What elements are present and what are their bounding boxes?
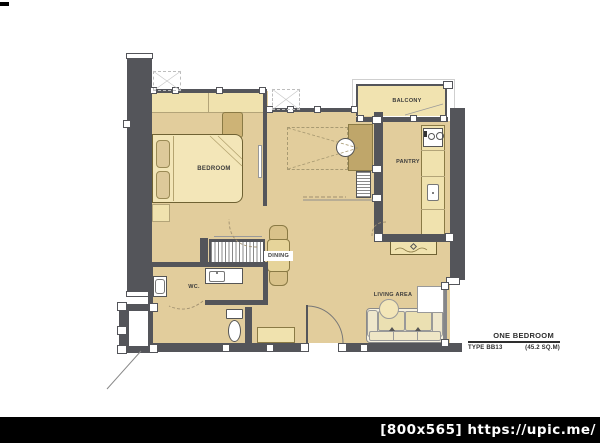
wall-joint — [149, 344, 158, 353]
room-label-living: LIVING AREA — [369, 291, 417, 300]
wall-joint — [117, 345, 127, 354]
scan-artifact — [0, 2, 9, 6]
wall-wc-top — [150, 262, 268, 267]
wall-toilet-nook — [245, 307, 252, 352]
pillow — [156, 171, 170, 199]
window-mullion — [410, 115, 417, 122]
room-label-bedroom: BEDROOM — [193, 165, 235, 174]
vestibule-floor — [129, 311, 149, 346]
room-label-pantry: PANTRY — [392, 158, 424, 167]
wall-joint — [374, 233, 383, 242]
watermark-text: [800x565] https://upic.me/ — [380, 422, 596, 438]
counter-divider — [421, 209, 445, 210]
window-mullion — [351, 106, 358, 113]
pillow — [156, 140, 170, 168]
cooktop-knob — [424, 131, 427, 137]
room-label-dining: DINING — [264, 251, 293, 261]
wall-closet-stub — [200, 238, 208, 266]
wall-joint — [300, 343, 309, 352]
balcony-door-band — [356, 117, 448, 122]
counter-divider — [421, 176, 445, 177]
side-table — [417, 286, 444, 313]
window-mullion — [440, 115, 447, 122]
sofa-mark — [389, 327, 395, 331]
burner — [428, 133, 435, 140]
plan-title: ONE BEDROOM — [468, 331, 560, 340]
wall-joint — [126, 53, 153, 59]
wc-sink-faucet — [216, 272, 218, 274]
dining-chair — [269, 271, 288, 286]
wall-joint — [441, 339, 449, 347]
room-label-balcony: BALCONY — [386, 97, 428, 106]
wall-joint — [372, 165, 382, 173]
window-mullion — [216, 87, 223, 94]
ac-unit-box — [153, 71, 181, 91]
pantry-sink-drain — [432, 192, 434, 194]
wall-joint — [441, 282, 449, 290]
floorplan-page: { "footer": { "watermark": "[800x565] ht… — [0, 0, 600, 443]
leader-line — [107, 351, 141, 389]
balcony-wall-top — [356, 84, 447, 86]
dining-chair — [269, 225, 288, 240]
bedroom-door-leaf — [258, 145, 262, 178]
wall-pantry-left — [374, 112, 383, 240]
wall-joint — [266, 344, 274, 352]
room-label-wc: WC. — [185, 283, 203, 292]
watermark-bar: [800x565] https://upic.me/ — [0, 417, 600, 443]
ceiling-lamp-circle — [336, 138, 355, 157]
wc-basin-inner — [155, 279, 165, 294]
wall-joint — [443, 81, 453, 89]
wall-pantry-living — [379, 234, 451, 242]
wall-right-exterior — [450, 108, 465, 280]
toilet-bowl — [228, 320, 241, 342]
wall-joint — [123, 120, 131, 128]
shoe-cabinet — [257, 327, 295, 343]
closet-rail-line — [214, 236, 262, 237]
wall-joint — [372, 116, 382, 124]
wall-joint — [117, 326, 127, 335]
sofa-back-divider — [417, 331, 418, 341]
bed-headboard-line — [173, 136, 174, 201]
plan-area: (45.2 SQ.M) — [525, 345, 560, 351]
wall-joint — [222, 344, 230, 352]
nightstand — [152, 204, 170, 222]
wall-joint — [372, 194, 382, 202]
window-mullion — [314, 106, 321, 113]
title-rule — [468, 341, 560, 343]
wardrobe-divider — [208, 93, 209, 113]
wall-joint — [117, 302, 127, 311]
window-wall-living-right — [444, 284, 447, 343]
ac-unit-box — [272, 89, 300, 110]
wall-joint — [360, 344, 368, 352]
wall-joint — [338, 343, 347, 352]
title-block: ONE BEDROOM TYPE BB13 (45.2 SQ.M) — [468, 331, 560, 351]
sofa-back — [369, 331, 441, 341]
sofa-mark — [415, 327, 421, 331]
window-mullion — [259, 87, 266, 94]
counter-divider — [421, 150, 445, 151]
louver-shelf — [356, 171, 371, 198]
toilet-tank — [226, 309, 243, 319]
wall-wc-mid — [205, 300, 268, 305]
plan-type-code: TYPE BB13 — [468, 345, 502, 351]
entrance-door-leaf — [306, 305, 308, 343]
ottoman — [379, 299, 399, 319]
sofa-back-divider — [393, 331, 394, 341]
wall-wc-right — [263, 267, 268, 305]
wall-joint — [149, 303, 158, 312]
window-mullion — [357, 115, 364, 122]
burner — [436, 132, 444, 140]
wall-joint — [445, 233, 454, 242]
